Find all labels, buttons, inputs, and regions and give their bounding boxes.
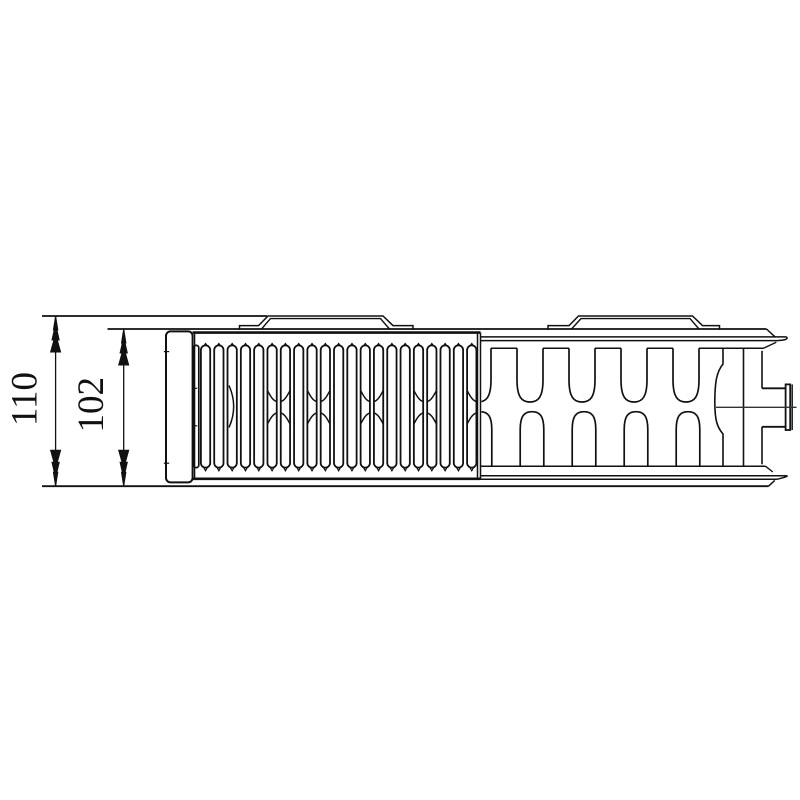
svg-text:102: 102	[71, 377, 112, 433]
svg-text:110: 110	[4, 372, 45, 426]
